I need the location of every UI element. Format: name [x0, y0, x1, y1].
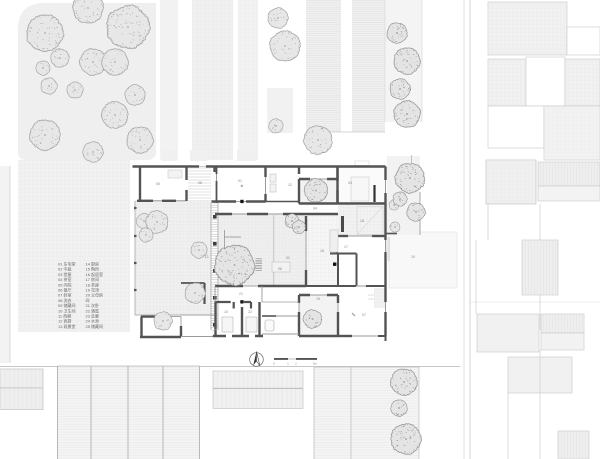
svg-text:03: 03 — [348, 181, 352, 185]
svg-text:12 西厨: 12 西厨 — [58, 318, 72, 324]
svg-text:18 茶座: 18 茶座 — [86, 281, 100, 287]
svg-text:22 酒窖: 22 酒窖 — [86, 307, 100, 313]
svg-text:01 东宅堂: 01 东宅堂 — [58, 261, 76, 267]
svg-text:16 起居室: 16 起居室 — [86, 271, 104, 277]
svg-text:02 中庭: 02 中庭 — [58, 266, 72, 272]
svg-text:08 洗衣: 08 洗衣 — [58, 297, 72, 303]
svg-text:间: 间 — [86, 297, 90, 303]
svg-text:16: 16 — [320, 249, 324, 253]
svg-text:12: 12 — [288, 183, 292, 187]
svg-text:22: 22 — [248, 310, 252, 314]
svg-text:05: 05 — [156, 182, 160, 186]
svg-text:17: 17 — [344, 245, 348, 249]
svg-text:14 厨房: 14 厨房 — [86, 261, 100, 267]
svg-text:17 房间: 17 房间 — [86, 276, 100, 282]
svg-text:20 父母房: 20 父母房 — [86, 292, 104, 298]
svg-text:15 陶所: 15 陶所 — [86, 266, 100, 272]
svg-text:01: 01 — [238, 179, 242, 183]
svg-text:09 储藏间: 09 储藏间 — [58, 302, 76, 308]
svg-text:05 内院: 05 内院 — [58, 281, 72, 287]
svg-text:13 观景堂: 13 观景堂 — [58, 323, 76, 329]
svg-text:24 水池: 24 水池 — [86, 318, 100, 324]
svg-text:07: 07 — [362, 313, 366, 317]
svg-text:10: 10 — [224, 310, 228, 314]
svg-text:15: 15 — [316, 297, 320, 301]
svg-text:18: 18 — [360, 219, 364, 223]
svg-text:03 堂屋: 03 堂屋 — [58, 271, 72, 277]
svg-text:21 次卧: 21 次卧 — [86, 302, 100, 308]
svg-text:06 餐厅: 06 餐厅 — [58, 287, 72, 293]
svg-text:07 卧室: 07 卧室 — [58, 292, 72, 298]
svg-text:02: 02 — [286, 256, 290, 260]
svg-text:23 走廊: 23 走廊 — [86, 313, 100, 319]
svg-text:5m: 5m — [313, 362, 318, 366]
svg-text:13: 13 — [205, 255, 209, 259]
svg-text:04 茶室: 04 茶室 — [58, 276, 72, 282]
svg-text:19: 19 — [411, 255, 415, 259]
svg-text:10 卫生间: 10 卫生间 — [58, 307, 76, 313]
svg-text:25 储藏间: 25 储藏间 — [86, 323, 104, 329]
svg-text:08: 08 — [198, 181, 202, 185]
svg-text:21: 21 — [239, 292, 243, 296]
svg-text:04: 04 — [313, 207, 317, 211]
svg-text:06: 06 — [278, 267, 282, 271]
svg-text:19 穹顶: 19 穹顶 — [86, 287, 100, 293]
